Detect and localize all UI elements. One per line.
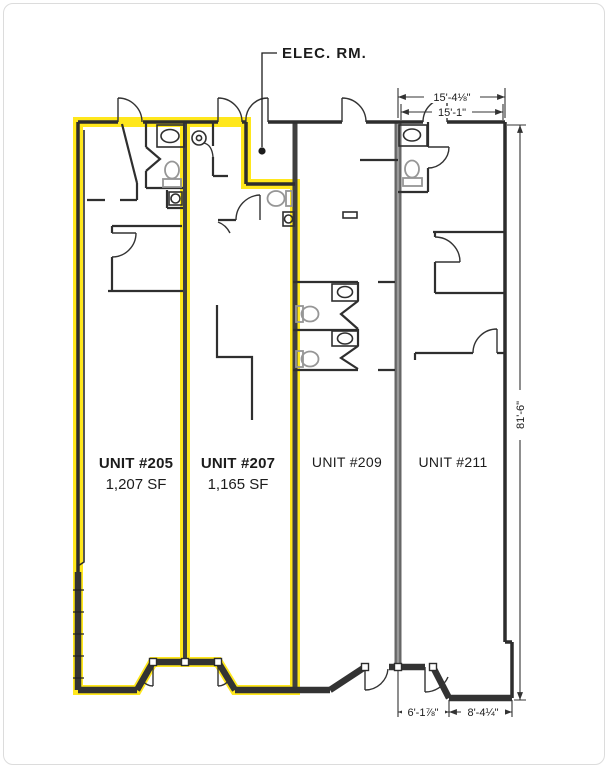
floor-plan-page: ELEC. RM. 15'-4⅛" 15'-1" 81'-6" 6'-1⅞" [0,0,608,768]
storefront-211 [398,667,512,698]
mop-sink-basin-205 [171,194,180,203]
unit211-rear-wall [415,353,505,360]
door-207-vestibule [218,195,260,233]
water-heater-207 [192,131,206,145]
unit207-closet [213,122,228,176]
water-heater-core-207 [196,135,201,140]
right-wall [505,122,512,698]
dim-bottom-left: 6'-1⅞" [407,707,438,719]
toilet-tank-211 [403,178,422,186]
elec-room-label: ELEC. RM. [282,45,367,62]
post [362,664,369,671]
elec-room-walls [246,122,295,184]
toilet-tank-205 [163,179,181,187]
toilet-bowl-211 [405,161,419,178]
post [215,659,222,666]
unit205-office [108,226,183,291]
post [182,659,189,666]
unit-205-name: UNIT #205 [99,455,173,472]
unit-209-name: UNIT #209 [312,454,382,470]
unit-207-name: UNIT #207 [201,455,275,472]
dim-top-inner: 15'-1" [438,107,466,119]
unit-211-name: UNIT #211 [418,454,487,470]
unit205-angled-room [87,124,137,200]
door-211-restroom [428,147,449,168]
unit-205-area: 1,207 SF [106,476,167,493]
floor-plan-canvas: ELEC. RM. 15'-4⅛" 15'-1" 81'-6" 6'-1⅞" [0,0,608,768]
door-211-rear-hall [473,329,497,353]
toilet-bowl-207 [268,191,285,206]
dim-top-outer: 15'-4⅛" [433,92,470,104]
post [150,659,157,666]
toilet-bowl-209b [302,352,319,367]
post [395,664,402,671]
dimension-labels: 15'-4⅛" 15'-1" 81'-6" 6'-1⅞" 8'-4¼" [402,90,527,719]
dimensions [398,88,526,717]
post [430,664,437,671]
door-207-closet [204,143,213,157]
toilet-bowl-205 [165,162,179,179]
toilet-tank-207 [286,191,292,206]
unit-207-area: 1,165 SF [208,476,269,493]
sink-basin-205 [161,130,179,143]
door-205-office [112,233,136,257]
sink-basin-209a [338,287,353,298]
door-211-office [435,237,460,262]
door-209-rear [342,98,366,122]
unit207-zigzag-wall [217,305,252,420]
sink-basin-209b [338,333,353,344]
sink-basin-211 [404,129,421,141]
toilet-bowl-209a [302,307,319,322]
elec-leader-dot [258,147,265,154]
elec-leader-line [262,53,277,147]
column-209 [343,212,357,218]
unit205-restroom-door-notch [146,147,160,171]
dim-bottom-right: 8'-4¼" [467,707,498,719]
dim-right-side: 81'-6" [515,401,527,429]
